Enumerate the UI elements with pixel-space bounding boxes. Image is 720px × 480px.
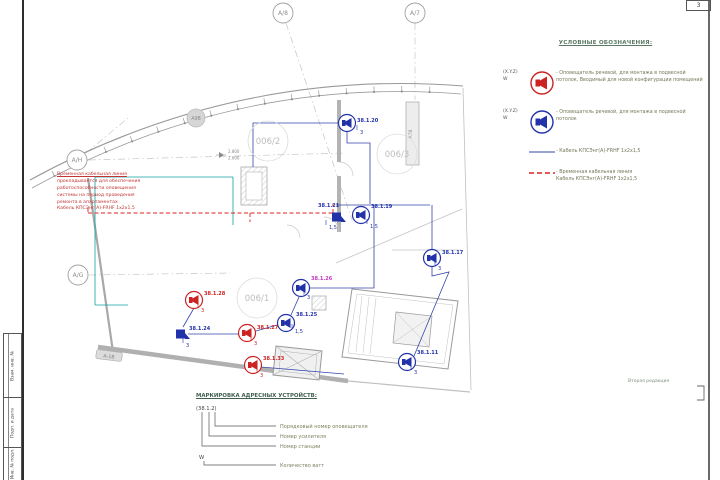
svg-text:2.800: 2.800 <box>228 149 240 154</box>
svg-text:38.1.28: 38.1.28 <box>204 291 226 297</box>
device-tag-label: (X.Y.Z)W <box>503 70 527 84</box>
marking-row-label: Номер станции <box>280 444 320 450</box>
speaker-device: 38.1.243 <box>176 326 211 349</box>
speaker-red-icon <box>527 70 556 96</box>
svg-text:38.1.25: 38.1.25 <box>296 312 318 318</box>
marking-row-label: Порядковый номер оповещателя <box>280 423 368 430</box>
axis-circles: А/8А/7А/НА/G <box>67 3 425 285</box>
address-marking-block: МАРКИРОВКА АДРЕСНЫХ УСТРОЙСТВ: (38.1.2) … <box>196 393 496 477</box>
drawing-sheet: А/8А/7А/НА/G 006/2006/3006/1 А9ВА7ВА-1В … <box>0 0 720 480</box>
cable-blue-line-icon <box>527 148 556 156</box>
svg-text:3: 3 <box>414 370 417 376</box>
speaker-device: 38.1.283 <box>186 291 226 314</box>
marking-watt-symbol: W <box>199 455 204 461</box>
speaker-blue-icon <box>527 109 556 135</box>
svg-text:38.1.11: 38.1.11 <box>417 350 439 356</box>
svg-text:3: 3 <box>360 130 363 136</box>
svg-text:38.1.26: 38.1.26 <box>311 276 333 282</box>
axis-marker: А/7 <box>405 3 425 23</box>
legend-item-text: - Временная кабельная линия Кабель КПСЭн… <box>556 169 706 183</box>
page-number-box: 3 <box>686 0 711 11</box>
room-labels: 006/2006/3006/1 <box>237 121 417 318</box>
legend-title: УСЛОВНЫЕ ОБОЗНАЧЕНИЯ: <box>503 40 708 46</box>
svg-text:А9В: А9В <box>191 116 201 122</box>
svg-text:3: 3 <box>201 308 204 314</box>
shaft-label: А9В <box>187 109 205 127</box>
legend-item-temp-cable: - Временная кабельная линия Кабель КПСЭн… <box>503 169 708 183</box>
walls <box>30 84 471 392</box>
device-tag-label: (X.Y.Z)W <box>503 109 527 123</box>
elevation-mark: 2.8002.600 <box>216 149 240 161</box>
svg-text:006/1: 006/1 <box>245 294 270 304</box>
axis-lines <box>86 23 415 275</box>
facade-mullion-ticks <box>52 86 431 177</box>
stamp-cell: Взам. инв. № <box>4 334 21 398</box>
svg-text:38.1.33: 38.1.33 <box>263 356 285 362</box>
svg-text:38.1.17: 38.1.17 <box>442 250 464 256</box>
svg-text:А/8: А/8 <box>278 10 288 17</box>
stamp-cell: Инв. № подл. <box>4 448 21 479</box>
svg-text:006/3: 006/3 <box>385 150 410 160</box>
svg-text:38.1.19: 38.1.19 <box>371 204 393 210</box>
svg-text:1,5: 1,5 <box>295 329 303 335</box>
speaker-device: 38.1.203 <box>339 115 379 137</box>
legend-item-text: - Оповещатель речевой, для монтажа в под… <box>556 109 706 123</box>
svg-text:3: 3 <box>307 295 310 301</box>
revision-note: Вторая редакция <box>628 379 669 384</box>
svg-text:006/2: 006/2 <box>256 137 281 147</box>
svg-text:2.600: 2.600 <box>228 156 240 161</box>
temporary-cable-annotation: Временная кабельная линия прокладывается… <box>57 172 171 213</box>
axis-marker: А/G <box>68 265 88 285</box>
speaker-device: 38.1.273 <box>239 325 279 348</box>
svg-text:38.1.21: 38.1.21 <box>318 203 340 209</box>
room-label: 006/1 <box>237 278 277 318</box>
stamp-column: Взам. инв. № Подп. и дата Инв. № подл. <box>3 333 22 480</box>
legend-item-text: - Оповещатель речевой, для монтажа в под… <box>556 70 706 84</box>
legend-item-speaker-new: (X.Y.Z)W - Оповещатель речевой, для монт… <box>503 70 708 96</box>
svg-text:38.1.20: 38.1.20 <box>357 118 379 124</box>
speaker-device: 38.1.251,5 <box>278 312 318 335</box>
axis-marker: А/Н <box>67 150 87 170</box>
svg-text:38.1.27: 38.1.27 <box>257 325 279 331</box>
stamp-cell: Подп. и дата <box>4 398 21 448</box>
svg-text:3: 3 <box>186 343 189 349</box>
elevator-core <box>273 346 322 380</box>
cable-red-dashed-line-icon <box>527 169 556 177</box>
legend-item-cable: - Кабель КПСЭнг(А)-FRHF 1x2x1,5 <box>503 148 708 156</box>
legend: УСЛОВНЫЕ ОБОЗНАЧЕНИЯ: (X.Y.Z)W - Оповеща… <box>503 40 708 183</box>
svg-text:А/7: А/7 <box>410 10 420 17</box>
marking-watt-label: Количество ватт <box>280 463 324 469</box>
marking-diagram: (38.1.2) Порядковый номер оповещателя Но… <box>196 399 496 477</box>
marking-row-label: Номер усилителя <box>280 434 326 440</box>
svg-text:А/G: А/G <box>73 272 84 279</box>
axis-marker: А/8 <box>273 3 293 23</box>
speaker-device: 38.1.211,5 <box>318 203 346 231</box>
speaker-device: 38.1.173 <box>424 250 464 273</box>
marking-example: (38.1.2) <box>196 406 217 412</box>
svg-text:А7В: А7В <box>408 129 414 138</box>
svg-text:38.1.24: 38.1.24 <box>189 326 211 332</box>
svg-text:3: 3 <box>254 341 257 347</box>
legend-item-speaker-existing: (X.Y.Z)W - Оповещатель речевой, для монт… <box>503 109 708 135</box>
svg-text:3: 3 <box>438 266 441 272</box>
legend-item-text: - Кабель КПСЭнг(А)-FRHF 1x2x1,5 <box>556 148 706 155</box>
shaft-label: А7В <box>408 129 414 138</box>
svg-text:А/Н: А/Н <box>72 157 83 164</box>
svg-text:3: 3 <box>260 373 263 379</box>
speaker-device: 38.1.113 <box>399 350 439 376</box>
frame-border-left <box>22 0 24 480</box>
speaker-device: 38.1.191,5 <box>353 204 393 230</box>
svg-text:1,5: 1,5 <box>370 224 378 230</box>
svg-text:1,5: 1,5 <box>329 225 337 231</box>
